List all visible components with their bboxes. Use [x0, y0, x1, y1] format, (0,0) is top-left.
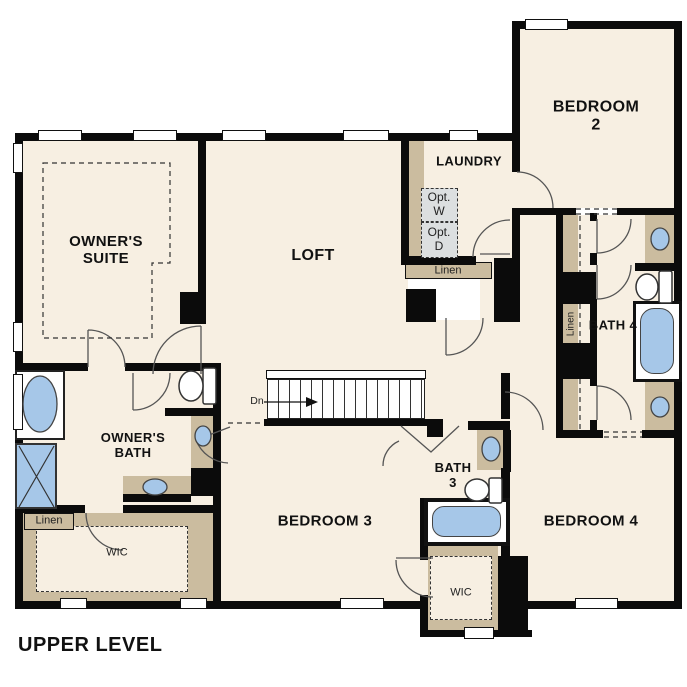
floorplan-page: OWNER'S SUITE LOFT LAUNDRY BEDROOM 2 BAT…: [0, 0, 687, 687]
wall: [125, 363, 213, 371]
window: [60, 598, 87, 609]
wall: [498, 556, 528, 630]
wall: [556, 215, 563, 430]
hall-closet-white2: [436, 279, 480, 320]
stairs-handrail: [266, 370, 426, 379]
wall: [556, 343, 596, 379]
bath3-label: BATH 3: [435, 461, 472, 491]
linen-laundry-label: Linen: [435, 265, 462, 278]
linen-owner-label: Linen: [36, 515, 63, 528]
wall: [191, 468, 217, 496]
wall: [427, 419, 443, 437]
stairs-down-label: Dn: [250, 395, 263, 407]
window: [464, 627, 494, 639]
wall: [556, 430, 603, 438]
window: [525, 19, 568, 30]
bedroom2-label: BEDROOM 2: [551, 99, 642, 136]
wall: [123, 505, 213, 513]
wall: [635, 263, 682, 271]
wall: [520, 208, 576, 215]
owners-bath-vanity-bottom: [123, 476, 191, 496]
shower-fixture: [15, 443, 57, 509]
window: [13, 322, 23, 352]
wall: [512, 208, 520, 258]
loft-label: LOFT: [291, 247, 334, 265]
wic-owner-label: WIC: [106, 547, 127, 560]
opt-dryer-label: Opt. D: [428, 226, 451, 254]
wall: [590, 213, 597, 221]
bath4-label: BATH 4: [589, 319, 637, 334]
bath4-tub: [640, 308, 674, 374]
wall: [642, 430, 682, 438]
wall: [512, 29, 520, 172]
window: [180, 598, 207, 609]
wall: [165, 408, 213, 416]
bath4-vanity-bottom: [645, 382, 675, 430]
laundry-label: LAUNDRY: [436, 155, 502, 170]
wall: [501, 373, 510, 419]
window: [13, 374, 23, 430]
wall: [617, 208, 675, 215]
plan-title: UPPER LEVEL: [18, 634, 162, 657]
linen-bath4-label: Linen: [565, 312, 577, 336]
window: [449, 130, 478, 141]
bedroom4-label: BEDROOM 4: [544, 512, 638, 529]
window: [343, 130, 389, 141]
window: [340, 598, 384, 609]
wall: [503, 430, 511, 472]
wall: [406, 289, 436, 322]
wall: [590, 253, 597, 265]
owners-bath-vanity-right: [191, 413, 215, 470]
stairs-treads: [267, 379, 425, 419]
bath3-vanity: [477, 428, 504, 470]
wall: [401, 133, 409, 258]
wall: [198, 141, 206, 293]
wall: [264, 419, 427, 426]
wall: [556, 272, 596, 304]
wall: [494, 258, 520, 322]
window: [575, 598, 618, 609]
bath3-tub: [432, 506, 501, 537]
owners-suite-label: OWNER'S SUITE: [69, 233, 143, 268]
window: [38, 130, 82, 141]
bath4-vanity-top: [645, 213, 675, 265]
wall: [420, 546, 428, 560]
owners-bath-label: OWNER'S BATH: [101, 431, 165, 461]
wall: [468, 421, 510, 430]
window: [133, 130, 177, 141]
wic-hall-label: WIC: [450, 587, 471, 600]
wall: [180, 292, 206, 324]
opt-washer-label: Opt. W: [428, 191, 451, 219]
floor-bedroom2-door-gap: [512, 172, 520, 208]
window: [222, 130, 266, 141]
bedroom3-label: BEDROOM 3: [278, 512, 372, 529]
wall: [123, 494, 191, 502]
window: [13, 143, 23, 173]
